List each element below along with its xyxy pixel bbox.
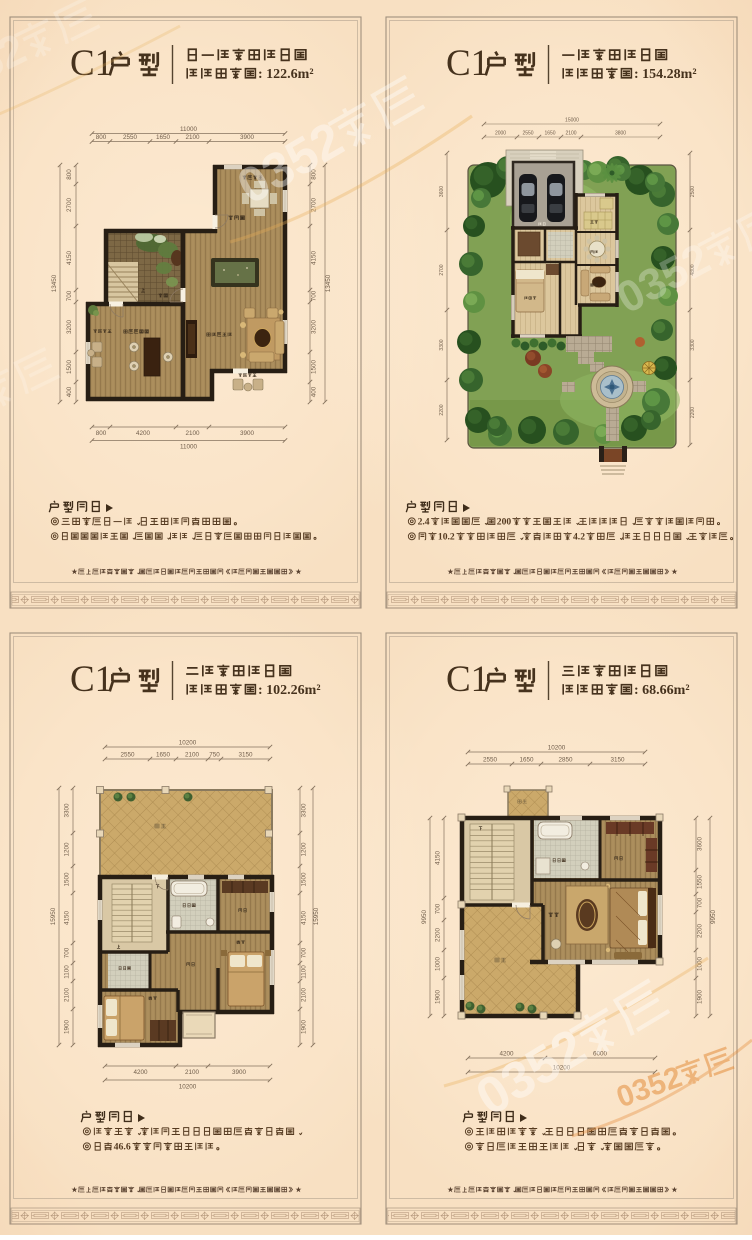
svg-text:2.4: 2.4 (418, 516, 430, 527)
svg-text:1200: 1200 (64, 842, 71, 857)
svg-text:3200: 3200 (311, 320, 318, 335)
svg-text:3900: 3900 (240, 430, 255, 437)
svg-text:15950: 15950 (50, 907, 57, 925)
svg-text:400: 400 (66, 386, 73, 397)
svg-text:C1: C1 (446, 43, 489, 84)
svg-text:3900: 3900 (240, 134, 255, 141)
svg-text:1100: 1100 (301, 965, 308, 979)
svg-text:700: 700 (301, 947, 308, 958)
svg-text:1900: 1900 (435, 990, 442, 1005)
svg-text:4150: 4150 (311, 251, 318, 266)
svg-text:3300: 3300 (690, 339, 696, 350)
svg-text:4200: 4200 (136, 430, 151, 437)
svg-text:3300: 3300 (64, 803, 71, 818)
svg-text:2100: 2100 (185, 134, 200, 141)
svg-text:4.2: 4.2 (573, 531, 585, 542)
svg-text:2550: 2550 (483, 757, 498, 764)
svg-text:3150: 3150 (238, 752, 253, 759)
svg-text:3800: 3800 (615, 131, 626, 137)
svg-text:: 122.6m²: : 122.6m² (258, 67, 314, 82)
svg-text:3600: 3600 (697, 837, 704, 852)
svg-text:700: 700 (66, 290, 73, 301)
svg-text:: 154.28m²: : 154.28m² (634, 67, 697, 82)
svg-text:: 68.66m²: : 68.66m² (634, 683, 690, 698)
svg-text:1650: 1650 (519, 757, 534, 764)
svg-text:1500: 1500 (64, 872, 71, 887)
svg-text:10.2: 10.2 (438, 531, 455, 542)
svg-text:1200: 1200 (301, 842, 308, 857)
svg-text:3150: 3150 (610, 757, 625, 764)
svg-text:46.6: 46.6 (114, 1142, 131, 1153)
svg-text:2200: 2200 (690, 407, 696, 418)
svg-text:2500: 2500 (690, 186, 696, 197)
svg-text:13450: 13450 (325, 274, 332, 292)
svg-text:1900: 1900 (301, 1020, 308, 1035)
svg-text:1900: 1900 (64, 1020, 71, 1035)
svg-text:1100: 1100 (64, 965, 71, 979)
svg-text:4150: 4150 (301, 911, 308, 926)
svg-text:2000: 2000 (495, 131, 506, 137)
svg-text:2700: 2700 (439, 264, 445, 275)
svg-text:2200: 2200 (697, 924, 704, 939)
svg-text:2550: 2550 (522, 131, 533, 137)
svg-text:200: 200 (497, 516, 512, 527)
svg-text:700: 700 (311, 290, 318, 301)
svg-text:2100: 2100 (64, 988, 71, 1003)
svg-text:3200: 3200 (66, 320, 73, 335)
svg-text:13450: 13450 (51, 274, 58, 292)
svg-text:1500: 1500 (301, 872, 308, 887)
svg-text:1550: 1550 (697, 875, 704, 890)
svg-text:2200: 2200 (439, 404, 445, 415)
svg-text:1500: 1500 (311, 360, 318, 375)
svg-text:700: 700 (435, 903, 442, 914)
svg-text:2100: 2100 (565, 131, 576, 137)
svg-text:10200: 10200 (179, 1084, 197, 1091)
svg-text:750: 750 (209, 752, 220, 759)
svg-text:1000: 1000 (435, 957, 442, 972)
svg-text:10200: 10200 (179, 740, 197, 747)
svg-text:4200: 4200 (133, 1069, 148, 1076)
svg-text:3900: 3900 (232, 1069, 247, 1076)
svg-text:3300: 3300 (439, 339, 445, 350)
svg-text:15000: 15000 (565, 118, 579, 124)
svg-text:1650: 1650 (544, 131, 555, 137)
svg-text:11000: 11000 (180, 444, 198, 451)
svg-text:2550: 2550 (123, 134, 138, 141)
svg-text:9950: 9950 (710, 910, 717, 925)
svg-text:1500: 1500 (66, 360, 73, 375)
svg-text:700: 700 (64, 947, 71, 958)
svg-text:1650: 1650 (156, 134, 171, 141)
svg-text:9950: 9950 (421, 910, 428, 925)
svg-text:2700: 2700 (66, 198, 73, 213)
svg-text:4150: 4150 (435, 851, 442, 866)
svg-text:: 102.26m²: : 102.26m² (258, 683, 321, 698)
svg-text:4150: 4150 (66, 251, 73, 266)
svg-text:2550: 2550 (120, 752, 135, 759)
svg-text:11000: 11000 (180, 126, 198, 133)
svg-text:800: 800 (66, 169, 73, 180)
svg-text:2200: 2200 (435, 928, 442, 943)
svg-text:3600: 3600 (439, 186, 445, 197)
svg-text:4150: 4150 (64, 911, 71, 926)
svg-text:400: 400 (311, 386, 318, 397)
svg-text:1900: 1900 (697, 990, 704, 1005)
svg-text:2100: 2100 (301, 988, 308, 1003)
svg-text:2100: 2100 (185, 752, 200, 759)
svg-text:15950: 15950 (313, 907, 320, 925)
svg-text:10200: 10200 (548, 745, 566, 752)
svg-text:C1: C1 (70, 659, 113, 700)
svg-text:2100: 2100 (185, 1069, 200, 1076)
svg-text:1650: 1650 (156, 752, 171, 759)
svg-text:700: 700 (697, 897, 704, 908)
svg-text:800: 800 (96, 134, 107, 141)
svg-text:C1: C1 (446, 659, 489, 700)
svg-text:800: 800 (96, 430, 107, 437)
svg-text:3300: 3300 (301, 803, 308, 818)
svg-text:2850: 2850 (558, 757, 573, 764)
svg-text:2100: 2100 (185, 430, 200, 437)
